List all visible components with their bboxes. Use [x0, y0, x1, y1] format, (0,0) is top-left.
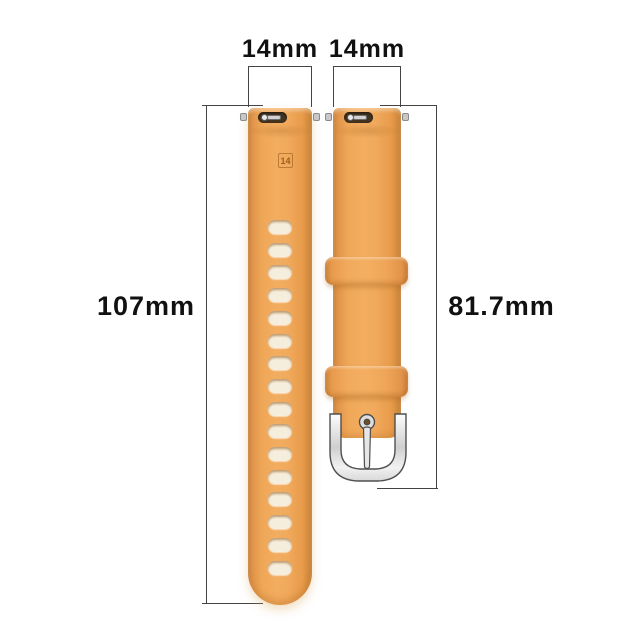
dimension-line-right-bracket-v1 [333, 66, 334, 107]
spring-bar-slot [344, 112, 373, 123]
dimension-line-left-tick-bottom [202, 603, 263, 604]
dim-label-right-strap-width: 14mm [322, 37, 412, 62]
dimension-line-right-tick-bottom [377, 488, 438, 489]
buckle-prong [364, 427, 371, 469]
dimension-line-left-bracket-v2 [311, 66, 312, 107]
strap-hole [268, 243, 292, 257]
buckle-prong-loop-hole [364, 419, 370, 425]
spring-bar-end-right [402, 113, 409, 121]
dimension-line-left-tick-top [202, 105, 263, 106]
dimension-line-right-bracket-top [333, 66, 401, 67]
strap-hole [268, 311, 292, 325]
spring-bar-end-left [240, 113, 247, 121]
dim-label-left-strap-width: 14mm [235, 37, 325, 62]
spring-bar-icon [267, 115, 281, 120]
dimension-line-right-tick-top [380, 105, 437, 106]
left-strap: 14 [248, 108, 312, 605]
keeper-loop-upper [325, 257, 408, 285]
dimension-line-left-bracket-v1 [248, 66, 249, 107]
strap-hole [268, 334, 292, 348]
dim-label-left-strap-length: 107mm [92, 293, 200, 320]
strap-hole [268, 379, 292, 393]
product-canvas: 14mm 14mm 107mm 81.7mm 14 [0, 0, 640, 640]
strap-hole [268, 220, 292, 234]
dimension-line-right-vertical [436, 105, 437, 488]
strap-hole [268, 402, 292, 416]
strap-hole [268, 515, 292, 529]
strap-hole [268, 492, 292, 506]
strap-hole [268, 356, 292, 370]
dimension-line-left-vertical [206, 105, 207, 603]
spring-bar-end-left [325, 113, 332, 121]
strap-fold-shadow [248, 124, 312, 138]
strap-hole [268, 265, 292, 279]
dim-label-right-strap-length: 81.7mm [444, 293, 559, 320]
strap-size-emboss: 14 [278, 153, 293, 168]
spring-bar-end-right [313, 113, 320, 121]
keeper-loop-lower [325, 366, 408, 397]
spring-bar-icon [353, 115, 367, 120]
strap-hole [268, 538, 292, 552]
strap-hole [268, 561, 292, 575]
spring-bar-slot [258, 112, 287, 123]
strap-hole [268, 447, 292, 461]
buckle [326, 412, 410, 486]
strap-hole [268, 288, 292, 302]
dimension-line-right-bracket-v2 [400, 66, 401, 107]
strap-hole [268, 470, 292, 484]
strap-hole [268, 424, 292, 438]
strap-fold-shadow [333, 124, 401, 138]
dimension-line-left-bracket-top [248, 66, 312, 67]
